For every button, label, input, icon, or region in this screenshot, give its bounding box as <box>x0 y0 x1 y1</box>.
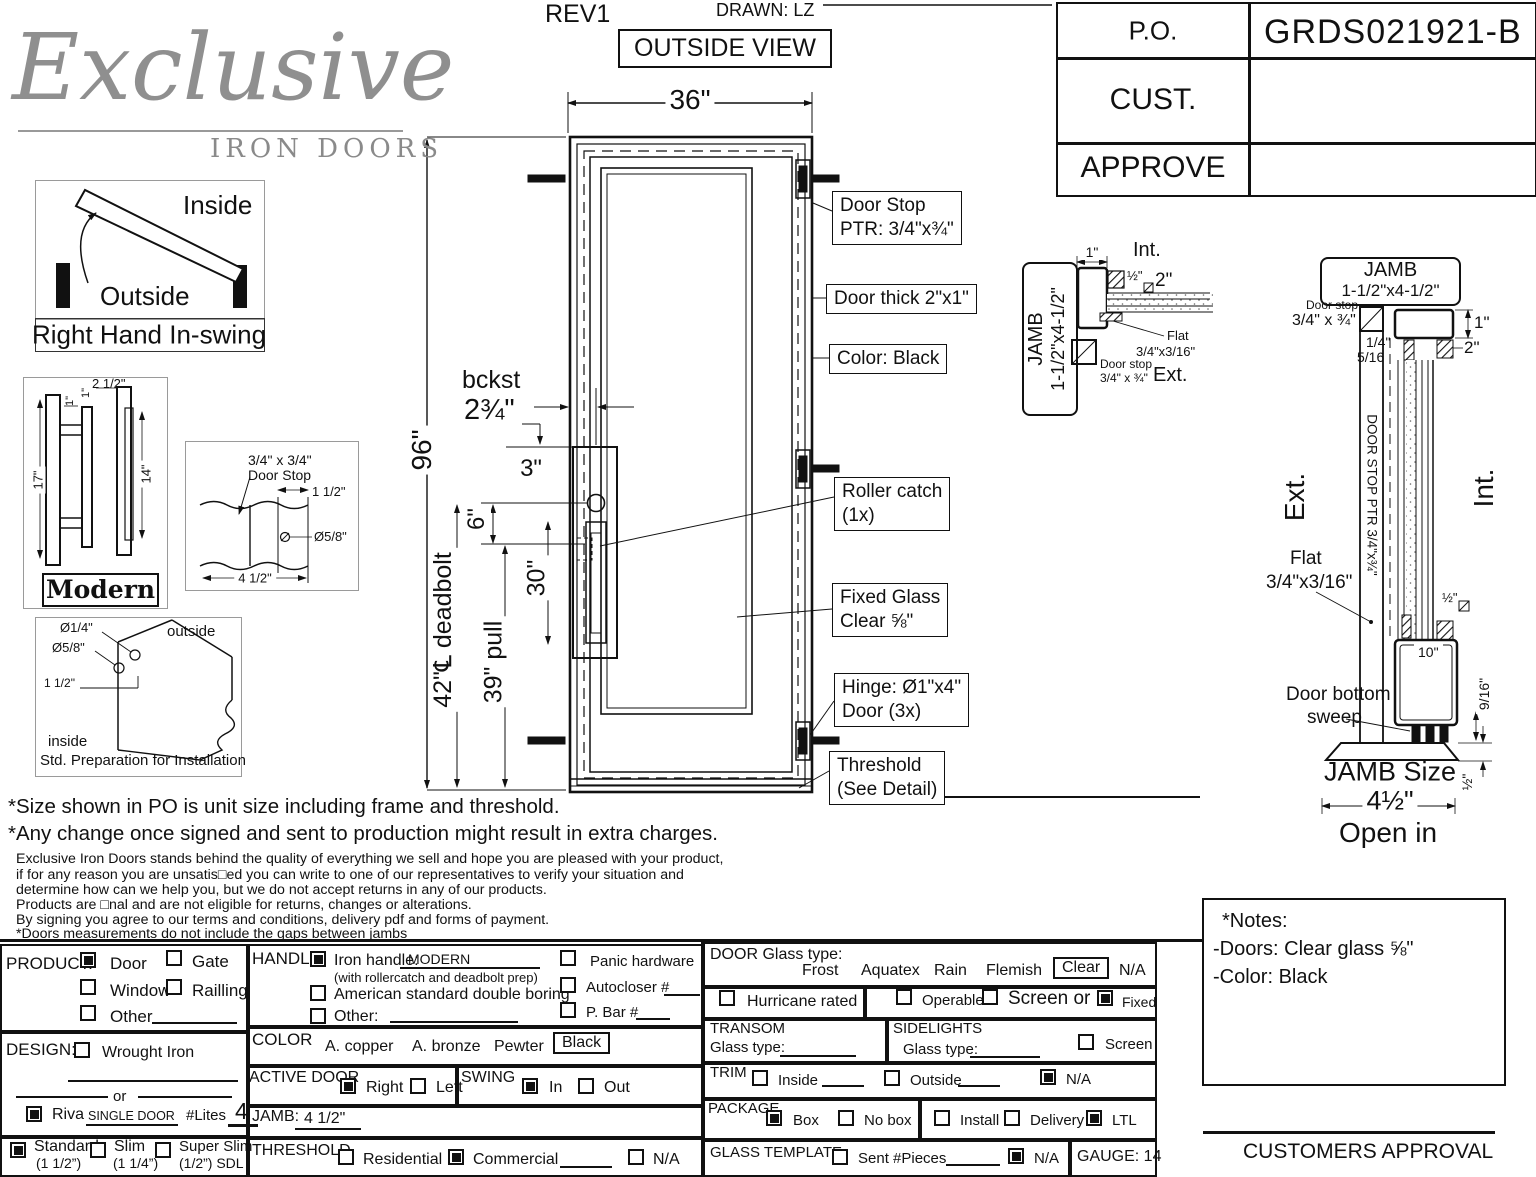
jamb-mid-title-2: 1-1/2"x4-1/2" <box>1048 264 1068 414</box>
checkbox-panic-hardware[interactable] <box>560 950 576 966</box>
jamb-right-flat-1: Flat <box>1290 548 1322 570</box>
callout-fixed-glass: Fixed Glass Clear ⅝" <box>832 583 948 637</box>
callout-door-thick: Door thick 2"x1" <box>826 284 977 314</box>
checkbox-sidelights-screen[interactable] <box>1078 1034 1094 1050</box>
swing-in-label: In <box>549 1079 562 1097</box>
disclaimer-line-4: if for any reason you are unsatis□ed you… <box>16 867 684 883</box>
riva-label: Riva <box>52 1106 84 1124</box>
checkbox-p-bar[interactable] <box>560 1002 576 1018</box>
checkbox-delivery[interactable] <box>1004 1110 1020 1126</box>
iron-handle-value: MODERN <box>408 951 470 967</box>
jamb-row-line <box>295 1128 361 1130</box>
transom-label: TRANSOM <box>710 1020 785 1037</box>
glass-selected-clear: Clear <box>1053 957 1109 979</box>
glass-template-label: GLASS TEMPLATE <box>710 1144 842 1161</box>
jamb-right-stop-1: Door stop <box>1306 298 1358 312</box>
checkbox-hurricane[interactable] <box>719 990 735 1006</box>
checkbox-gate[interactable] <box>166 950 182 966</box>
po-number: GRDS021921-B <box>1264 13 1522 52</box>
box-label: Box <box>793 1112 819 1129</box>
logo-underline <box>18 130 403 132</box>
checkbox-american-boring[interactable] <box>310 985 326 1001</box>
prep-dim-1: Ø1/4" <box>60 620 93 635</box>
doorstop-dim-1: 1 1/2" <box>312 484 346 499</box>
disclaimer-line-1: *Size shown in PO is unit size including… <box>8 795 560 819</box>
design-or-dash-right <box>138 1096 232 1098</box>
checkbox-trim-na[interactable] <box>1040 1069 1056 1085</box>
door-elevation <box>570 137 812 792</box>
approve-label: APPROVE <box>1080 151 1225 185</box>
checkbox-active-left[interactable] <box>410 1078 426 1094</box>
glass-aquatex: Aquatex <box>861 962 920 980</box>
notes-title: *Notes: <box>1222 910 1288 933</box>
callout-hinge: Hinge: Ø1"x4" Door (3x) <box>834 673 969 727</box>
callout-roller-line2: (1x) <box>842 504 942 528</box>
color-selected-black: Black <box>553 1032 610 1054</box>
product-door-label: Door <box>110 954 147 974</box>
dim-42-deadbolt: 42"℄ deadbolt <box>428 548 458 712</box>
dim-14: 14" <box>139 460 154 487</box>
jamb-size-label: JAMB Size <box>1324 757 1456 788</box>
prep-dim-3: 1 1/2" <box>44 676 75 690</box>
doorstop-dim-2: Ø5/8" <box>314 529 347 544</box>
super-slim-label: Super Slim <box>179 1138 252 1155</box>
product-window-label: Window <box>110 981 170 1001</box>
design-or-dash-left <box>16 1096 108 1098</box>
po-label: P.O. <box>1129 16 1178 47</box>
screen-or-label: Screen or <box>1008 988 1090 1010</box>
riva-line <box>86 1124 178 1126</box>
callout-door-stop-line1: Door Stop <box>840 194 954 218</box>
checkbox-iron-handle[interactable] <box>310 951 326 967</box>
sidelights-screen-label: Screen <box>1105 1036 1153 1053</box>
dim-39-pull: 39" pull <box>480 617 509 708</box>
p-bar-label: P. Bar # <box>586 1004 638 1021</box>
riva-value: SINGLE DOOR <box>88 1109 175 1123</box>
sent-pieces-label: Sent #Pieces <box>858 1150 946 1167</box>
prep-caption: Std. Preparation for Installation <box>40 752 246 769</box>
slim-sub: (1 1/4”) <box>113 1155 158 1171</box>
trim-outside-label: Outside <box>910 1072 962 1089</box>
jamb-right-sweep-2: sweep <box>1307 707 1362 729</box>
jamb-right-dim-half: ½" <box>1442 590 1457 605</box>
design-blank-line <box>68 1080 238 1082</box>
install-label: Install <box>960 1112 999 1129</box>
swing-caption: Right Hand In-swing <box>32 320 266 351</box>
commercial-label: Commercial <box>473 1151 558 1169</box>
active-left-label: Left <box>436 1079 463 1097</box>
handle-plate <box>573 447 617 658</box>
commercial-line <box>560 1166 612 1168</box>
checkbox-threshold-na[interactable] <box>628 1149 644 1165</box>
lites-value: 4 <box>235 1098 248 1125</box>
jamb-right-title-1: JAMB <box>1322 259 1459 281</box>
disclaimer-line-3: Exclusive Iron Doors stands behind the q… <box>16 851 723 867</box>
standard-sub: (1 1/2”) <box>36 1155 81 1171</box>
checkbox-ltl[interactable] <box>1086 1110 1102 1126</box>
callout-threshold-line1: Threshold <box>837 754 937 778</box>
jamb-size-value: 4½" <box>1362 786 1417 817</box>
fixed-label: Fixed <box>1122 994 1156 1010</box>
glass-rain: Rain <box>934 962 967 980</box>
american-boring-label: American standard double boring <box>334 986 570 1004</box>
prep-inside-label: inside <box>48 733 87 750</box>
dim-30in: 30" <box>523 556 552 601</box>
product-railling-label: Railling <box>192 981 248 1001</box>
checkbox-autocloser[interactable] <box>560 977 576 993</box>
color-pewter: Pewter <box>494 1038 544 1056</box>
trim-inside-label: Inside <box>778 1072 818 1089</box>
modern-caption: Modern <box>42 573 159 607</box>
checkbox-trim-inside[interactable] <box>752 1070 768 1086</box>
checkbox-swing-in[interactable] <box>522 1078 538 1094</box>
checkbox-trim-outside[interactable] <box>884 1070 900 1086</box>
template-na-label: N/A <box>1034 1150 1059 1167</box>
jamb-right-dim-916: 9/16" <box>1476 674 1492 714</box>
dim-3in: 3" <box>516 455 546 483</box>
sent-pieces-line <box>946 1164 1000 1166</box>
swing-out-label: Out <box>604 1079 630 1097</box>
jamb-mid-flat-1: Flat <box>1167 328 1189 343</box>
jamb-mid-ext: Ext. <box>1153 364 1187 387</box>
jamb-right-flat-2: 3/4"x3/16" <box>1266 572 1352 594</box>
checkbox-install[interactable] <box>934 1110 950 1126</box>
glass-flemish: Flemish <box>986 962 1042 980</box>
jamb-right-doorstop-vertical: DOOR STOP PTR 3/4"x¾" <box>1365 414 1380 575</box>
checkbox-active-right[interactable] <box>340 1078 356 1094</box>
doorstop-title-2: Door Stop <box>248 467 311 483</box>
logo-subtitle: IRON DOORS <box>210 134 443 164</box>
deadbolt-circle <box>588 495 605 512</box>
swing-inside-label: Inside <box>183 190 252 221</box>
jamb-right-dim-114: 1/4" <box>1366 334 1390 350</box>
jamb-mid-int: Int. <box>1133 239 1161 262</box>
outside-view-label: OUTSIDE VIEW <box>618 29 832 68</box>
jamb-mid-title-box: JAMB 1-1/2"x4-1/2" <box>1022 262 1078 416</box>
callout-door-stop-line2: PTR: 3/4"x¾" <box>840 218 954 242</box>
logo-script: Exclusive <box>12 14 454 121</box>
checkbox-sent-pieces[interactable] <box>832 1149 848 1165</box>
doorstop-title-1: 3/4" x 3/4" <box>248 452 312 468</box>
threshold-na-label: N/A <box>653 1151 680 1169</box>
swing-outside-label: Outside <box>100 281 190 312</box>
jamb-right-dim-2: 2" <box>1464 338 1480 358</box>
jamb-right-ext: Ext. <box>1279 473 1311 521</box>
trim-outside-line <box>958 1085 1000 1087</box>
jamb-mid-stop-2: 3/4" x ¾" <box>1100 371 1148 385</box>
checkbox-wrought-iron[interactable] <box>74 1042 90 1058</box>
residential-label: Residential <box>363 1151 442 1169</box>
ltl-label: LTL <box>1112 1112 1137 1129</box>
dim-6in: 6" <box>463 504 491 534</box>
jamb-row-value: 4 1/2" <box>304 1110 345 1128</box>
checkbox-commercial[interactable] <box>448 1149 464 1165</box>
signature-line <box>1203 1131 1495 1134</box>
transom-glass-label: Glass type: <box>710 1039 785 1056</box>
no-box-label: No box <box>864 1112 912 1129</box>
color-label: COLOR <box>252 1030 312 1050</box>
threshold-label: THRESHOLD <box>252 1142 351 1160</box>
checkbox-handle-other[interactable] <box>310 1008 326 1024</box>
dim-1a: 1" <box>64 396 76 406</box>
color-copper: A. copper <box>325 1038 393 1056</box>
design-or-label: or <box>113 1088 126 1105</box>
callout-door-stop: Door Stop PTR: 3/4"x¾" <box>832 191 962 245</box>
swing-label: SWING <box>461 1069 515 1087</box>
door-spec-sheet: { "logo": {"script": "Exclusive", "sub":… <box>0 0 1536 1173</box>
jamb-right-lines <box>1316 307 1492 814</box>
jamb-mid-stop-1: Door stop <box>1100 357 1152 371</box>
drawn-by-label: DRAWN: LZ <box>716 0 814 21</box>
dim-1b: 1" <box>80 388 92 398</box>
color-bronze: A. bronze <box>412 1038 480 1056</box>
prep-dim-2: Ø5/8" <box>52 640 85 655</box>
callout-color: Color: Black <box>829 344 947 374</box>
handle-other-label: Other: <box>334 1008 378 1026</box>
product-other-label: Other <box>110 1007 153 1027</box>
dim-width-36: 36" <box>665 84 714 116</box>
checkbox-residential[interactable] <box>338 1149 354 1165</box>
active-right-label: Right <box>366 1079 403 1097</box>
cust-label: CUST. <box>1110 83 1197 117</box>
product-other-line <box>152 1022 237 1024</box>
jamb-mid-dim-1: 1" <box>1082 244 1103 260</box>
notes-line-1: -Doors: Clear glass ⅝" <box>1213 938 1414 961</box>
callout-hinge-line2: Door (3x) <box>842 700 961 724</box>
trim-inside-line <box>822 1085 864 1087</box>
checkbox-railling[interactable] <box>166 979 182 995</box>
pull-handle <box>586 522 606 643</box>
open-in-label: Open in <box>1339 817 1437 849</box>
checkbox-screen[interactable] <box>982 989 998 1005</box>
dim-height-96: 96" <box>406 425 438 474</box>
transom-glass-line <box>780 1055 856 1057</box>
checkbox-template-na[interactable] <box>1008 1148 1024 1164</box>
checkbox-no-box[interactable] <box>838 1110 854 1126</box>
customers-approval-label: CUSTOMERS APPROVAL <box>1243 1140 1493 1164</box>
disclaimer-line-2: *Any change once signed and sent to prod… <box>8 822 718 846</box>
operable-label: Operable <box>922 992 984 1009</box>
notes-line-2: -Color: Black <box>1213 966 1327 989</box>
notes-box: *Notes: -Doors: Clear glass ⅝" -Color: B… <box>1202 898 1506 1086</box>
sidelights-glass-line <box>970 1056 1040 1058</box>
sidelights-glass-label: Glass type: <box>903 1041 978 1058</box>
checkbox-box[interactable] <box>766 1110 782 1126</box>
jamb-right-dim-10: 10" <box>1414 644 1443 660</box>
trim-na-label: N/A <box>1066 1071 1091 1088</box>
dim-17: 17" <box>31 466 46 493</box>
checkbox-fixed[interactable] <box>1097 990 1113 1006</box>
dim-backset-value: 2¾" <box>464 394 515 427</box>
callout-roller-line1: Roller catch <box>842 480 942 504</box>
checkbox-door[interactable] <box>80 952 96 968</box>
dim-backset-label: bckst <box>462 366 520 395</box>
jamb-mid-dim-2: 2" <box>1155 270 1172 292</box>
checkbox-standard[interactable] <box>10 1142 26 1158</box>
prep-outside-label: outside <box>167 623 215 640</box>
disclaimer-line-6: Products are □nal and are not eligible f… <box>16 897 472 913</box>
sidelights-label: SIDELIGHTS <box>893 1020 982 1037</box>
product-gate-label: Gate <box>192 952 229 972</box>
iron-handle-sub: (with rollercatch and deadbolt prep) <box>334 970 538 985</box>
po-table-divider <box>1248 4 1251 195</box>
callout-hinge-line1: Hinge: Ø1"x4" <box>842 676 961 700</box>
rev-label: REV1 <box>545 0 610 29</box>
po-table: P.O. GRDS021921-B CUST. APPROVE <box>1056 2 1536 197</box>
autocloser-label: Autocloser # <box>586 979 669 996</box>
jamb-right-dim-1: 1" <box>1474 313 1490 333</box>
delivery-label: Delivery <box>1030 1112 1084 1129</box>
hurricane-label: Hurricane rated <box>747 993 857 1011</box>
checkbox-product-other[interactable] <box>80 1005 96 1021</box>
po-table-row-line <box>1058 142 1535 145</box>
slim-label: Slim <box>114 1138 145 1156</box>
autocloser-line <box>664 994 700 996</box>
roller-catch-mark <box>577 538 592 560</box>
jamb-mid-title-1: JAMB <box>1024 264 1048 414</box>
jamb-mid-dim-half: ½" <box>1127 268 1142 283</box>
callout-leaders <box>600 203 834 788</box>
po-table-row-line <box>1058 57 1535 60</box>
glass-frost: Frost <box>802 962 838 980</box>
callout-roller-catch: Roller catch (1x) <box>834 477 950 531</box>
checkbox-riva[interactable] <box>26 1106 42 1122</box>
callout-threshold-line2: (See Detail) <box>837 778 937 802</box>
super-slim-sub: (1/2”) SDL <box>179 1155 244 1171</box>
hinge-icon <box>528 160 839 760</box>
checkbox-swing-out[interactable] <box>578 1078 594 1094</box>
iron-handle-line <box>400 967 540 969</box>
checkbox-slim[interactable] <box>90 1142 106 1158</box>
lites-label: #Lites <box>186 1107 226 1124</box>
gauge-label: GAUGE: 14 <box>1077 1148 1161 1166</box>
jamb-right-sweep-1: Door bottom <box>1286 684 1391 706</box>
checkbox-super-slim[interactable] <box>155 1142 171 1158</box>
handle-other-line <box>390 1021 518 1023</box>
jamb-row-label: JAMB: <box>252 1108 299 1126</box>
trim-label: TRIM <box>710 1064 747 1081</box>
jamb-right-int: Int. <box>1468 469 1500 508</box>
panic-hardware-label: Panic hardware <box>590 953 694 970</box>
p-bar-line <box>636 1018 670 1020</box>
checkbox-window[interactable] <box>80 979 96 995</box>
checkbox-operable[interactable] <box>896 989 912 1005</box>
wrought-iron-label: Wrought Iron <box>102 1044 194 1062</box>
glass-na: N/A <box>1119 962 1146 980</box>
jamb-right-dim-half-2: ½" <box>1459 770 1475 795</box>
dim-2-5: 2 1/2" <box>92 376 126 391</box>
callout-glass-line2: Clear ⅝" <box>840 610 940 634</box>
callout-glass-line1: Fixed Glass <box>840 586 940 610</box>
callout-threshold: Threshold (See Detail) <box>829 751 945 805</box>
jamb-right-dim-516: 5/16 <box>1357 349 1384 365</box>
design-label: DESIGN: <box>6 1040 76 1060</box>
jamb-right-stop-2: 3/4" x ¾" <box>1292 312 1356 330</box>
doorstop-dim-3: 4 1/2" <box>234 571 276 586</box>
disclaimer-line-5: determine how can we help you, but we do… <box>16 882 547 898</box>
